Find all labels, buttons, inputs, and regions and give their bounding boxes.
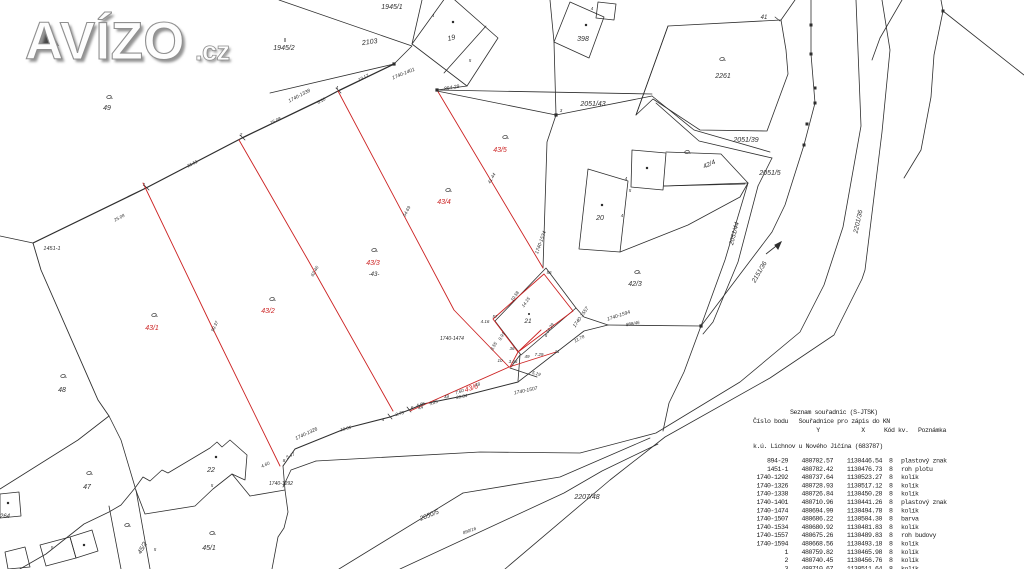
- svg-text:480728.93: 480728.93: [801, 482, 833, 489]
- svg-text:41: 41: [761, 15, 768, 21]
- svg-text:480737.64: 480737.64: [801, 474, 833, 481]
- svg-text:1130465.98: 1130465.98: [847, 549, 883, 556]
- svg-text:1130511.64: 1130511.64: [847, 565, 883, 569]
- svg-text:1130456.76: 1130456.76: [847, 557, 883, 564]
- svg-text:kolík: kolík: [901, 524, 919, 531]
- svg-text:2207/48: 2207/48: [573, 494, 599, 501]
- svg-text:894-29: 894-29: [767, 458, 789, 465]
- svg-text:2: 2: [784, 557, 788, 564]
- svg-text:480726.84: 480726.84: [801, 491, 833, 498]
- svg-text:8: 8: [889, 541, 893, 548]
- svg-text:8: 8: [889, 565, 893, 569]
- svg-text:480686.22: 480686.22: [801, 516, 833, 523]
- svg-text:8: 8: [889, 524, 893, 531]
- svg-text:k.ú. Lichnov u Nového Jičína (: k.ú. Lichnov u Nového Jičína (683787): [753, 443, 883, 450]
- svg-text:kolík: kolík: [901, 549, 919, 556]
- svg-text:-43-: -43-: [369, 272, 380, 278]
- svg-text:480702.57: 480702.57: [801, 458, 833, 465]
- svg-text:1740-1507: 1740-1507: [756, 516, 788, 523]
- svg-text:20: 20: [595, 215, 604, 222]
- svg-text:1740-1292: 1740-1292: [269, 481, 293, 487]
- svg-text:Seznam souřadnic (S-JTSK): Seznam souřadnic (S-JTSK): [790, 409, 878, 416]
- svg-text:barva: barva: [901, 516, 919, 523]
- svg-text:480782.42: 480782.42: [801, 466, 833, 473]
- svg-text:1130517.12: 1130517.12: [847, 482, 883, 489]
- svg-text:8: 8: [889, 458, 893, 465]
- svg-text:8: 8: [889, 532, 893, 539]
- svg-text:2051/39: 2051/39: [732, 137, 758, 144]
- svg-text:1740-1534: 1740-1534: [756, 524, 788, 531]
- svg-text:2051/5: 2051/5: [758, 170, 781, 177]
- svg-text:1130446.54: 1130446.54: [847, 458, 883, 465]
- svg-text:kolík: kolík: [901, 507, 919, 514]
- svg-text:8: 8: [889, 499, 893, 506]
- svg-text:8: 8: [889, 482, 893, 489]
- svg-text:1945/1: 1945/1: [381, 4, 403, 11]
- svg-text:Y: Y: [816, 427, 820, 434]
- svg-text:1130489.83: 1130489.83: [847, 532, 883, 539]
- svg-text:480694.99: 480694.99: [801, 507, 833, 514]
- svg-text:264: 264: [0, 514, 11, 520]
- svg-text:1740-1326: 1740-1326: [756, 482, 788, 489]
- svg-text:1: 1: [784, 549, 788, 556]
- svg-text:kolík: kolík: [901, 557, 919, 564]
- svg-text:8: 8: [889, 557, 893, 564]
- svg-text:1740-1557: 1740-1557: [756, 532, 788, 539]
- svg-text:57: 57: [492, 314, 498, 319]
- svg-text:X: X: [861, 427, 865, 434]
- svg-text:43/2: 43/2: [261, 308, 275, 315]
- svg-text:480668.56: 480668.56: [801, 541, 833, 548]
- svg-text:43/4: 43/4: [437, 199, 451, 206]
- svg-text:kolík: kolík: [901, 541, 919, 548]
- svg-text:1451-1: 1451-1: [43, 246, 60, 252]
- svg-text:10: 10: [497, 358, 503, 363]
- svg-text:1451-1: 1451-1: [767, 466, 789, 473]
- svg-text:480680.92: 480680.92: [801, 524, 833, 531]
- svg-text:22: 22: [206, 467, 215, 474]
- svg-text:kolík: kolík: [901, 482, 919, 489]
- svg-text:45/1: 45/1: [202, 545, 216, 552]
- svg-text:480710.96: 480710.96: [801, 499, 833, 506]
- svg-text:8: 8: [889, 474, 893, 481]
- svg-text:8: 8: [889, 507, 893, 514]
- svg-text:kolík: kolík: [901, 565, 919, 569]
- svg-text:1740-1338: 1740-1338: [756, 491, 788, 498]
- svg-text:1130441.26: 1130441.26: [847, 499, 883, 506]
- svg-text:3.66: 3.66: [509, 359, 518, 364]
- svg-text:1130523.27: 1130523.27: [847, 474, 883, 481]
- svg-text:36: 36: [509, 346, 515, 351]
- svg-text:480675.26: 480675.26: [801, 532, 833, 539]
- svg-text:7.29: 7.29: [535, 352, 544, 357]
- svg-text:1740-1474: 1740-1474: [440, 336, 464, 342]
- svg-text:1945/2: 1945/2: [273, 45, 295, 52]
- svg-text:plastový znak: plastový znak: [901, 458, 947, 465]
- svg-text:43/5: 43/5: [493, 147, 507, 154]
- svg-text:AVÍZO: AVÍZO: [25, 11, 185, 71]
- svg-text:1740-1594: 1740-1594: [756, 541, 788, 548]
- svg-text:1740-1401: 1740-1401: [756, 499, 788, 506]
- svg-text:3: 3: [784, 565, 788, 569]
- svg-text:4.16: 4.16: [481, 319, 490, 324]
- svg-text:56: 56: [546, 270, 552, 275]
- svg-text:1740-1292: 1740-1292: [756, 474, 788, 481]
- svg-text:398: 398: [577, 36, 589, 43]
- svg-text:kolík: kolík: [901, 474, 919, 481]
- svg-text:1130504.30: 1130504.30: [847, 516, 883, 523]
- svg-text:1130493.18: 1130493.18: [847, 541, 883, 548]
- svg-text:49: 49: [103, 105, 111, 112]
- svg-text:49: 49: [524, 354, 530, 359]
- svg-text:II: II: [284, 38, 287, 44]
- svg-text:1130481.83: 1130481.83: [847, 524, 883, 531]
- svg-text:21: 21: [523, 318, 532, 325]
- svg-text:8: 8: [889, 491, 893, 498]
- svg-text:roh budovy: roh budovy: [901, 532, 937, 539]
- svg-text:2: 2: [239, 132, 243, 137]
- svg-text:42/3: 42/3: [628, 281, 642, 288]
- svg-text:8: 8: [889, 516, 893, 523]
- svg-text:1130476.73: 1130476.73: [847, 466, 883, 473]
- svg-text:2051/43: 2051/43: [579, 101, 605, 108]
- svg-text:48: 48: [58, 387, 66, 394]
- svg-text:1130450.28: 1130450.28: [847, 491, 883, 498]
- svg-text:1740-1474: 1740-1474: [756, 507, 788, 514]
- svg-text:11: 11: [555, 349, 560, 354]
- svg-text:kolík: kolík: [901, 491, 919, 498]
- svg-text:8: 8: [889, 549, 893, 556]
- svg-text:1130494.78: 1130494.78: [847, 507, 883, 514]
- svg-text:plastový znak: plastový znak: [901, 499, 947, 506]
- svg-text:43/3: 43/3: [366, 260, 380, 267]
- svg-text:8: 8: [889, 466, 893, 473]
- svg-text:Kód kv.: Kód kv.: [884, 427, 909, 434]
- svg-text:43/1: 43/1: [145, 325, 159, 332]
- svg-text:480740.45: 480740.45: [801, 557, 833, 564]
- svg-text:2261: 2261: [714, 73, 731, 80]
- svg-text:480759.82: 480759.82: [801, 549, 833, 556]
- svg-text:roh plotu: roh plotu: [901, 466, 933, 473]
- svg-text:480710.67: 480710.67: [801, 565, 833, 569]
- svg-text:.cz: .cz: [195, 36, 230, 66]
- svg-text:Číslo bodu Souřadnice pro zá: Číslo bodu Souřadnice pro zápis do KN: [753, 416, 890, 425]
- svg-text:Poznámka: Poznámka: [918, 427, 947, 434]
- svg-text:47: 47: [83, 484, 92, 491]
